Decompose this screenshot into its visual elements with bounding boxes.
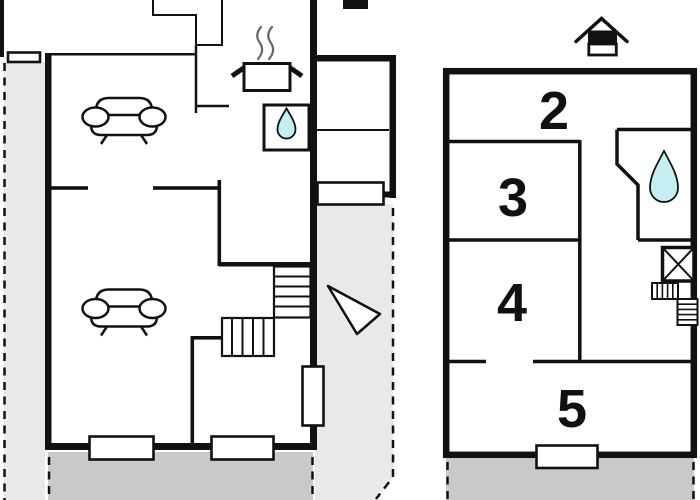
window bbox=[212, 437, 274, 460]
wall bbox=[191, 336, 222, 340]
window bbox=[90, 437, 154, 460]
steam-icon bbox=[268, 27, 273, 59]
house-body-open bbox=[589, 44, 617, 55]
terrace-strip-right bbox=[315, 204, 393, 500]
room-label-4: 4 bbox=[497, 273, 527, 333]
wall bbox=[0, 0, 4, 57]
wall-outline-cut bbox=[153, 0, 222, 45]
wall bbox=[218, 180, 222, 266]
chimney-icon bbox=[343, 0, 368, 9]
stove-pot-icon bbox=[232, 27, 302, 91]
wall bbox=[191, 336, 195, 447]
house-body-filled bbox=[588, 31, 617, 45]
floor-plan-canvas: 2 3 4 5 bbox=[0, 0, 700, 500]
wall bbox=[390, 55, 397, 198]
stair-flight-upper bbox=[274, 267, 311, 318]
terrace-strip-left bbox=[4, 62, 45, 500]
window bbox=[537, 446, 598, 469]
window bbox=[318, 183, 384, 205]
stair-flight-lower bbox=[222, 318, 274, 356]
staircase-icon bbox=[222, 267, 311, 357]
upper-floor-plan: 2 3 4 5 bbox=[446, 19, 697, 469]
sink-icon bbox=[264, 105, 309, 150]
window bbox=[303, 367, 324, 426]
entry-door bbox=[8, 53, 40, 63]
shower-icon bbox=[663, 248, 695, 282]
floor-plan-page: 2 3 4 5 bbox=[0, 0, 700, 500]
sofa-icon bbox=[83, 98, 166, 144]
stair-flight-lower bbox=[678, 299, 698, 325]
room-label-5: 5 bbox=[557, 379, 587, 439]
room-label-2: 2 bbox=[539, 81, 569, 141]
sofa-icon bbox=[83, 290, 166, 336]
pot-body bbox=[244, 64, 290, 91]
steam-icon bbox=[257, 27, 262, 59]
house-marker-icon bbox=[576, 19, 627, 56]
room-label-3: 3 bbox=[498, 168, 528, 228]
wall bbox=[45, 53, 52, 450]
stair-flight-upper bbox=[652, 283, 678, 299]
kitchen-partition-wall bbox=[196, 45, 229, 113]
wall bbox=[45, 53, 196, 56]
wall bbox=[48, 186, 88, 190]
wall bbox=[45, 443, 317, 450]
wall bbox=[153, 186, 220, 190]
wall bbox=[313, 55, 396, 62]
